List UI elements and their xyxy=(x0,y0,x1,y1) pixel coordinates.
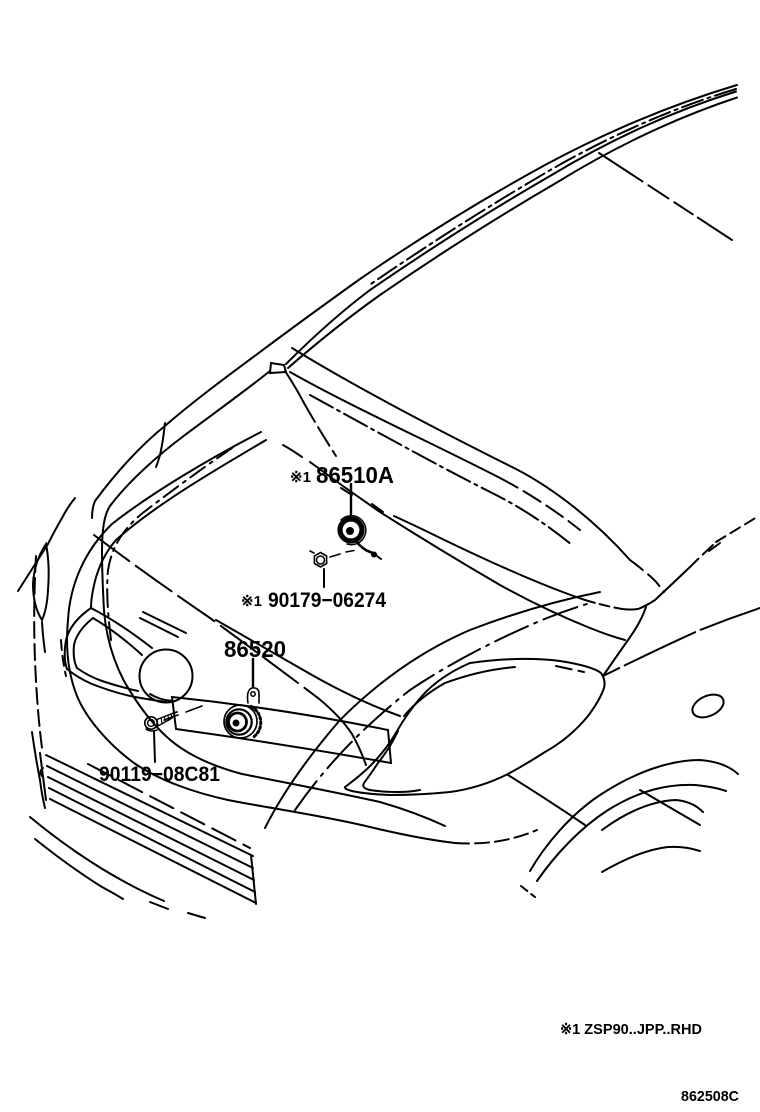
svg-text:862508C: 862508C xyxy=(681,1088,739,1105)
svg-text:※1: ※1 xyxy=(290,469,311,486)
svg-text:※1: ※1 xyxy=(241,593,262,610)
svg-text:86510A: 86510A xyxy=(316,462,394,488)
svg-text:90119−08C81: 90119−08C81 xyxy=(99,763,220,786)
svg-text:90179−06274: 90179−06274 xyxy=(268,589,386,612)
svg-text:86520: 86520 xyxy=(224,636,286,662)
svg-text:※1 ZSP90..JPP..RHD: ※1 ZSP90..JPP..RHD xyxy=(560,1021,702,1038)
